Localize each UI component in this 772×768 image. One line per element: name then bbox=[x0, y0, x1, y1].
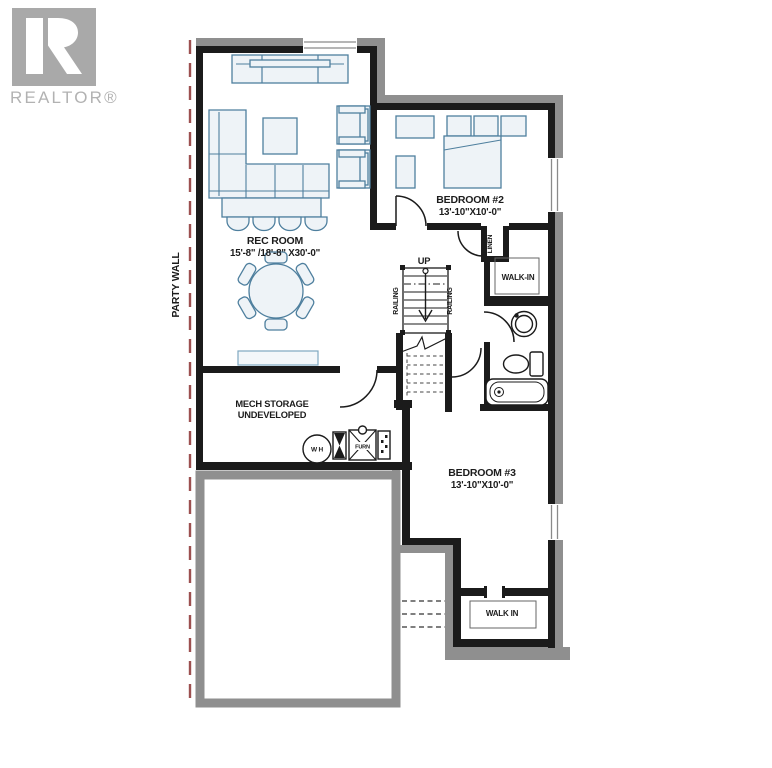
armchair bbox=[337, 106, 370, 144]
realtor-r-stem bbox=[26, 18, 43, 74]
dresser bbox=[396, 156, 415, 188]
media-console bbox=[232, 55, 348, 83]
under-stair-dashes bbox=[407, 353, 444, 398]
armchair bbox=[337, 150, 370, 188]
door-bathroom bbox=[484, 312, 514, 342]
hrv-unit bbox=[333, 432, 346, 459]
bathroom bbox=[486, 312, 548, 406]
floor-plan-canvas: REALTOR® PARTY WALL bbox=[0, 0, 772, 768]
furnace: FURN bbox=[349, 426, 376, 460]
pillow bbox=[447, 116, 471, 136]
bench bbox=[396, 116, 434, 138]
mech-storage-status: UNDEVELOPED bbox=[238, 410, 307, 420]
nightstand bbox=[501, 116, 526, 136]
bed bbox=[444, 136, 501, 188]
rec-room-furniture bbox=[209, 55, 370, 365]
window-bedroom3 bbox=[546, 504, 565, 540]
stairs-up-label: UP bbox=[418, 256, 431, 266]
railing-left-label: RAILING bbox=[393, 287, 400, 315]
walkin-upper-label: WALK-IN bbox=[502, 273, 535, 282]
pillow bbox=[474, 116, 498, 136]
water-heater-label: W H bbox=[311, 447, 324, 454]
dashed-connectors bbox=[402, 601, 445, 627]
door-walkin-upper bbox=[458, 231, 483, 256]
future-room-outline bbox=[200, 475, 396, 703]
bedroom3-dims: 13'-10"X10'-0" bbox=[451, 480, 513, 491]
walkin-lower-label: WALK IN bbox=[486, 609, 519, 618]
toilet-tank bbox=[530, 352, 543, 376]
bar-counter bbox=[222, 198, 321, 217]
rec-room-name: REC ROOM bbox=[247, 235, 304, 247]
mech-storage-name: MECH STORAGE bbox=[235, 399, 308, 409]
bedroom3-name: BEDROOM #3 bbox=[448, 467, 516, 479]
coffee-table bbox=[263, 118, 297, 154]
realtor-logo-text: REALTOR® bbox=[10, 88, 119, 107]
stairs-break-line bbox=[401, 337, 449, 352]
credenza bbox=[238, 351, 318, 365]
bedroom2-dims: 13'-10"X10'-0" bbox=[439, 207, 501, 218]
realtor-logo: REALTOR® bbox=[10, 8, 119, 107]
bar-stools bbox=[227, 217, 327, 231]
mechanical-equipment: W H FURN bbox=[303, 426, 390, 463]
door-bedroom2 bbox=[396, 196, 426, 226]
party-wall-label: PARTY WALL bbox=[170, 252, 182, 318]
toilet-bowl bbox=[504, 355, 529, 373]
door-mech-storage bbox=[340, 370, 377, 407]
window-rec-room bbox=[303, 36, 357, 53]
floor-plan-page: REALTOR® PARTY WALL bbox=[0, 0, 772, 768]
linen-label: LINEN bbox=[487, 234, 494, 253]
utility-panel bbox=[378, 431, 390, 459]
door-bedroom3 bbox=[452, 348, 481, 377]
railing-right-label: RAILING bbox=[447, 287, 454, 315]
window-bedroom2 bbox=[546, 158, 565, 212]
furnace-label: FURN bbox=[355, 445, 370, 451]
rec-room-dims: 15'-8" /18'-8" X30'-0" bbox=[230, 248, 320, 259]
bedroom2-furniture bbox=[396, 116, 526, 188]
dining-table bbox=[237, 252, 316, 330]
bedroom2-name: BEDROOM #2 bbox=[436, 194, 504, 206]
